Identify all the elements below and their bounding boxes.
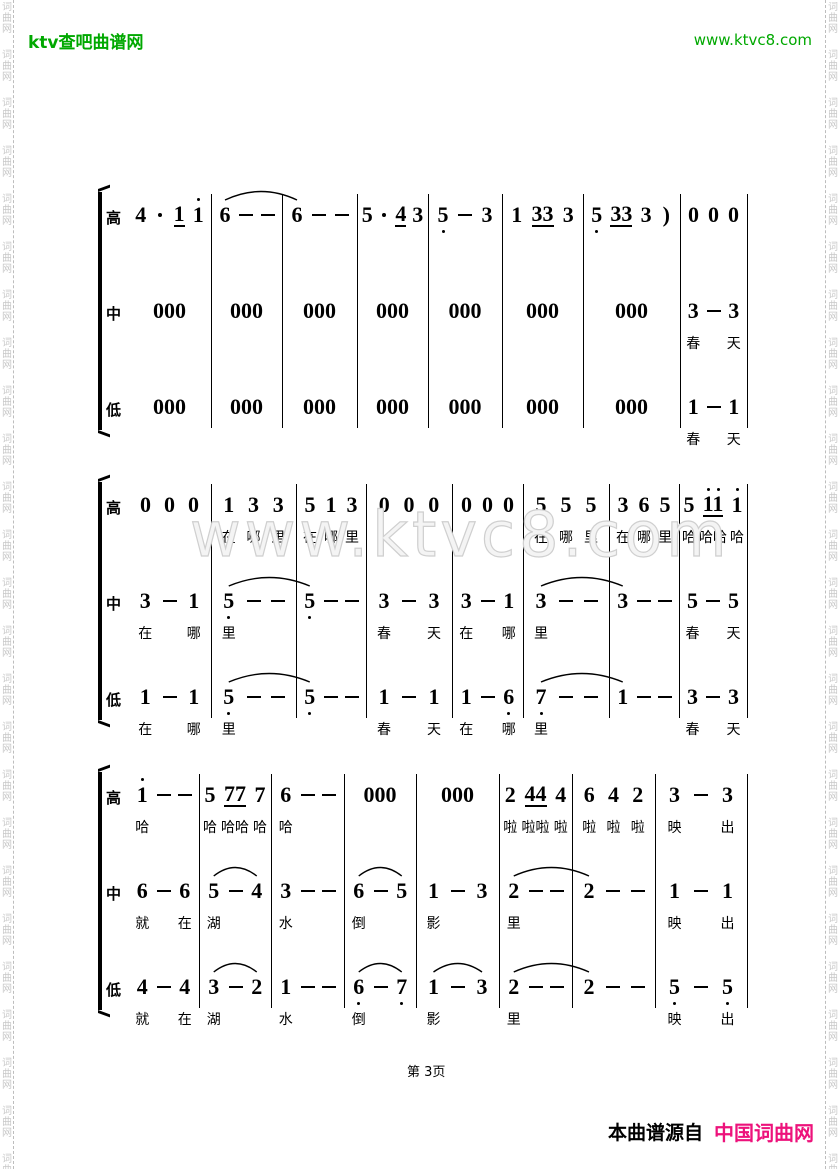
note-token: 77哈哈 <box>221 776 249 835</box>
lyric-syllable: 哈 <box>730 527 744 545</box>
lyric-syllable: 里 <box>584 527 598 545</box>
lyric-syllable: 天 <box>727 333 741 351</box>
measure: 000 <box>680 196 747 255</box>
measure: 4就4在 <box>128 968 199 1027</box>
measure: 1影3 <box>416 968 499 1027</box>
dash-token <box>322 968 336 1027</box>
note-token: 5里 <box>584 486 598 545</box>
lyric-syllable: 哈 <box>279 817 293 835</box>
dash-token <box>658 678 672 737</box>
measure: 3湖2 <box>199 968 271 1027</box>
lyric-syllable: 春 <box>686 623 700 641</box>
note-token: 4就 <box>135 968 149 1027</box>
note-token: 1哪 <box>187 678 201 737</box>
note-token: 1哪 <box>187 582 201 641</box>
lyric-syllable: 天 <box>727 623 741 641</box>
note-token: 6哈 <box>279 776 293 835</box>
note-token: 3在 <box>616 486 630 545</box>
note-token: 5哈 <box>203 776 217 835</box>
measure: 3春3天 <box>680 292 747 351</box>
dash-token <box>706 678 720 737</box>
measure: 1333 <box>502 196 583 255</box>
note-token: 3春 <box>377 582 391 641</box>
lyric-syllable: 影 <box>427 913 441 931</box>
note-token: 3在 <box>459 582 473 641</box>
lyric-syllable: 天 <box>427 623 441 641</box>
note-token: 3出 <box>721 776 735 835</box>
dash-token <box>707 388 721 447</box>
dash-token <box>345 582 359 641</box>
note-token: 3 <box>411 196 424 255</box>
note-token: 1 <box>192 196 205 255</box>
measure: 000 <box>357 388 428 447</box>
note-token: 33 <box>532 196 554 255</box>
note-token: 3 <box>562 196 575 255</box>
note-token: 5里 <box>222 678 236 737</box>
dash-token <box>584 582 598 641</box>
score-area: 高411665435313335333)000中0000000000000000… <box>0 0 840 1169</box>
note-token: 3春 <box>686 678 700 737</box>
lyric-syllable: 倒 <box>352 1009 366 1027</box>
note-token: 5映 <box>668 968 682 1027</box>
note-token: 5天 <box>727 582 741 641</box>
lyric-syllable: 哈哈 <box>699 527 727 545</box>
lyric-syllable: 哈 <box>253 817 267 835</box>
note-token: 2 <box>250 968 263 1027</box>
note-token: 4在 <box>178 968 192 1027</box>
measure: 1哈 <box>128 776 199 835</box>
dash-token <box>301 776 315 835</box>
lyric-syllable: 在 <box>459 719 473 737</box>
measure: 543 <box>357 196 428 255</box>
dash-token <box>229 968 243 1027</box>
note-token: 2 <box>583 968 596 1027</box>
rest-token: 000 <box>449 292 482 351</box>
note-token: 1哪 <box>502 582 516 641</box>
dash-token <box>178 776 192 835</box>
note-token: 1天 <box>727 388 741 447</box>
note-token: 3映 <box>668 776 682 835</box>
note-token: 4 <box>250 872 263 931</box>
lyric-syllable: 里 <box>345 527 359 545</box>
dash-token <box>157 776 171 835</box>
dash-token <box>694 968 708 1027</box>
measure: 000 <box>344 776 416 835</box>
octave-dots-below <box>357 1000 360 1006</box>
dash-token <box>247 678 261 737</box>
lyric-syllable: 春 <box>686 429 700 447</box>
note-token: 2啦 <box>631 776 645 835</box>
dash-token <box>301 968 315 1027</box>
lyric-syllable: 天 <box>727 719 741 737</box>
lyric-syllable: 哪 <box>502 719 516 737</box>
rest-token: 000 <box>526 388 559 447</box>
lyric-syllable: 出 <box>721 1009 735 1027</box>
measure: 000 <box>452 486 523 545</box>
lyric-syllable: 在 <box>178 1009 192 1027</box>
measure: 000 <box>502 388 583 447</box>
note-token: 6就 <box>135 872 149 931</box>
measure: 3春3天 <box>366 582 452 641</box>
barline <box>747 194 748 428</box>
system-bracket <box>98 482 102 720</box>
lyric-syllable: 春 <box>686 719 700 737</box>
octave-dots-below <box>308 614 311 620</box>
part-label: 中 <box>106 303 124 324</box>
measure: 000 <box>282 292 357 351</box>
rest-token: 0 <box>687 196 700 255</box>
measure: 000 <box>211 388 282 447</box>
measure: 000 <box>583 292 680 351</box>
dash-token <box>324 678 338 737</box>
lyric-syllable: 哪 <box>187 719 201 737</box>
measure: 5在5哪5里 <box>523 486 609 545</box>
lyric-syllable: 倒 <box>352 913 366 931</box>
measure: 3水 <box>271 872 344 931</box>
note-token: 5在 <box>534 486 548 545</box>
measure: 000 <box>366 486 452 545</box>
note-token: 5 <box>437 196 450 255</box>
note-token: 2里 <box>507 968 521 1027</box>
measure: 1 <box>609 678 679 737</box>
lyric-syllable: 在 <box>616 527 630 545</box>
note-token: 6哪 <box>502 678 516 737</box>
lyric-syllable: 啦 <box>554 817 568 835</box>
octave-dots-below <box>673 1000 676 1006</box>
note-token: 1春 <box>686 388 700 447</box>
lyric-syllable: 啦 <box>631 817 645 835</box>
dash-token <box>157 968 171 1027</box>
measure: 1映1出 <box>655 872 747 931</box>
lyric-syllable: 里 <box>222 719 236 737</box>
measure: 000 <box>211 292 282 351</box>
dash-token <box>271 678 285 737</box>
note-token: 4 <box>134 196 147 255</box>
lyric-syllable: 就 <box>135 913 149 931</box>
note-token: 2里 <box>507 872 521 931</box>
dash-token <box>631 968 645 1027</box>
lyric-syllable: 哪 <box>247 527 261 545</box>
dash-token <box>239 196 253 255</box>
rest-token: 000 <box>615 292 648 351</box>
lyric-syllable: 湖 <box>207 913 221 931</box>
measure: 1影3 <box>416 872 499 931</box>
note-token: 7哈 <box>253 776 267 835</box>
system-bracket <box>98 192 102 430</box>
measure: 3在1哪 <box>128 582 211 641</box>
lyric-syllable: 啦 <box>607 817 621 835</box>
measure: 3映3出 <box>655 776 747 835</box>
note-token: 3 <box>481 196 494 255</box>
rest-token: 0 <box>139 486 152 545</box>
note-token: 5哪 <box>559 486 573 545</box>
dash-token <box>163 582 177 641</box>
lyric-syllable: 湖 <box>207 1009 221 1027</box>
measure: 1春1天 <box>680 388 747 447</box>
rest-token: 000 <box>526 292 559 351</box>
dash-token <box>529 968 543 1027</box>
lyric-syllable: 天 <box>727 429 741 447</box>
measure: 411 <box>128 196 211 255</box>
rest-token: 0 <box>460 486 473 545</box>
measure: 000 <box>128 388 211 447</box>
measure: 5里 <box>211 582 296 641</box>
note-token: 5出 <box>721 968 735 1027</box>
rest-token: 000 <box>230 388 263 447</box>
part-label: 高 <box>106 497 124 518</box>
lyric-syllable: 春 <box>377 623 391 641</box>
measure: 000 <box>128 486 211 545</box>
measure: 3 <box>609 582 679 641</box>
note-token: 1在 <box>459 678 473 737</box>
lyric-syllable: 映 <box>668 1009 682 1027</box>
measure: 000 <box>583 388 680 447</box>
dash-token <box>247 582 261 641</box>
rest-token: 000 <box>449 388 482 447</box>
dash-token <box>694 872 708 931</box>
measure: 5湖4 <box>199 872 271 931</box>
lyric-syllable: 里 <box>658 527 672 545</box>
note-token: 3里 <box>345 486 359 545</box>
note-token: 5里 <box>222 582 236 641</box>
rest-token: 0 <box>707 196 720 255</box>
system-bracket <box>98 772 102 1010</box>
lyric-syllable: 水 <box>279 1009 293 1027</box>
measure: 000 <box>357 292 428 351</box>
lyric-syllable: 天 <box>427 719 441 737</box>
measure: 6哈 <box>271 776 344 835</box>
note-token: 5里 <box>658 486 672 545</box>
dash-token <box>374 968 388 1027</box>
rest-token: 0 <box>502 486 515 545</box>
rest-token: 0 <box>187 486 200 545</box>
lyric-syllable: 哈 <box>135 817 149 835</box>
measure: 000 <box>428 292 502 351</box>
measure: 5春5天 <box>679 582 747 641</box>
lyric-syllable: 春 <box>686 333 700 351</box>
dash-token <box>374 872 388 931</box>
measure: 2 <box>572 968 655 1027</box>
lyric-syllable: 春 <box>377 719 391 737</box>
lyric-syllable: 出 <box>721 913 735 931</box>
rest-token: 0 <box>427 486 440 545</box>
note-token: 1哈 <box>135 776 149 835</box>
note-token: 6倒 <box>352 872 366 931</box>
dash-token <box>606 872 620 931</box>
dash-token <box>550 968 564 1027</box>
rest-token: 000 <box>376 292 409 351</box>
note-token: 3哪 <box>247 486 261 545</box>
note-token: 6 <box>291 196 304 255</box>
note-token: 1在 <box>222 486 236 545</box>
dash-token <box>584 678 598 737</box>
note-token: 4啦 <box>554 776 568 835</box>
lyric-syllable: 在 <box>138 623 152 641</box>
measure: 3春3天 <box>679 678 747 737</box>
measure: 6 <box>211 196 282 255</box>
lyric-syllable: 哈 <box>682 527 696 545</box>
dash-token <box>229 872 243 931</box>
barline <box>747 484 748 718</box>
dash-token <box>312 196 326 255</box>
lyric-syllable: 里 <box>507 913 521 931</box>
octave-dots-below <box>400 1000 403 1006</box>
measure: 5 <box>296 582 366 641</box>
measure: 6就6在 <box>128 872 199 931</box>
octave-dots-below <box>540 710 543 716</box>
note-token: 4 <box>394 196 407 255</box>
lyric-syllable: 里 <box>534 623 548 641</box>
measure: 1春1天 <box>366 678 452 737</box>
measure: 6倒7 <box>344 968 416 1027</box>
lyric-syllable: 在 <box>138 719 152 737</box>
note-token: 1影 <box>427 872 441 931</box>
lyric-syllable: 水 <box>279 913 293 931</box>
note-token: 3 <box>640 196 653 255</box>
note-token: 3 <box>476 968 489 1027</box>
note-token: 44啦啦 <box>522 776 550 835</box>
note-token: 1 <box>616 678 629 737</box>
rest-token: 0 <box>403 486 416 545</box>
measure: 2里 <box>499 872 572 931</box>
note-token: 6哪 <box>637 486 651 545</box>
measure: 000 <box>416 776 499 835</box>
lyric-syllable: 哪 <box>559 527 573 545</box>
dash-token <box>451 968 465 1027</box>
measure: 3在6哪5里 <box>609 486 679 545</box>
dash-token <box>606 968 620 1027</box>
measure: 2啦44啦啦4啦 <box>499 776 572 835</box>
measure: 6 <box>282 196 357 255</box>
paren-token: ) <box>660 196 673 255</box>
lyric-syllable: 映 <box>668 913 682 931</box>
octave-dots-below <box>227 614 230 620</box>
note-token: 5 <box>361 196 374 255</box>
note-token: 1水 <box>279 968 293 1027</box>
rest-token: 0 <box>163 486 176 545</box>
lyric-syllable: 里 <box>222 623 236 641</box>
dash-token <box>637 678 651 737</box>
part-label: 高 <box>106 787 124 808</box>
measure: 000 <box>128 292 211 351</box>
octave-dots-below <box>726 1000 729 1006</box>
lyric-syllable: 里 <box>534 719 548 737</box>
note-token: 1 <box>173 196 186 255</box>
note-token: 6啦 <box>582 776 596 835</box>
dash-token <box>271 582 285 641</box>
lyric-syllable: 出 <box>721 817 735 835</box>
part-label: 低 <box>106 979 124 1000</box>
note-token: 1天 <box>427 678 441 737</box>
note-token: 1在 <box>138 678 152 737</box>
measure: 5在1哪3里 <box>296 486 366 545</box>
dash-token <box>658 582 672 641</box>
dash-token <box>481 582 495 641</box>
measure: 000 <box>502 292 583 351</box>
measure: 2 <box>572 872 655 931</box>
note-token: 1出 <box>721 872 735 931</box>
dash-token <box>261 196 275 255</box>
note-token: 3里 <box>534 582 548 641</box>
dash-token <box>335 196 349 255</box>
note-token: 7里 <box>534 678 548 737</box>
note-token: 5在 <box>303 486 317 545</box>
dash-token <box>402 678 416 737</box>
measure: 2里 <box>499 968 572 1027</box>
note-token: 5春 <box>686 582 700 641</box>
rest-token: 000 <box>364 776 397 835</box>
measure: 1在1哪 <box>128 678 211 737</box>
measure: 1在3哪3里 <box>211 486 296 545</box>
rest-token: 000 <box>303 292 336 351</box>
note-token: 5湖 <box>207 872 221 931</box>
measure: 6倒5 <box>344 872 416 931</box>
dash-token <box>451 872 465 931</box>
dash-token <box>322 872 336 931</box>
note-token: 11哈哈 <box>699 486 727 545</box>
measure: 5里 <box>211 678 296 737</box>
dash-token <box>529 872 543 931</box>
note-token: 3 <box>476 872 489 931</box>
measure: 5333) <box>583 196 680 255</box>
lyric-syllable: 就 <box>135 1009 149 1027</box>
rest-token: 0 <box>378 486 391 545</box>
measure: 000 <box>428 388 502 447</box>
dash-token <box>559 678 573 737</box>
lyric-syllable: 哪 <box>324 527 338 545</box>
note-token: 2啦 <box>503 776 517 835</box>
dash-token <box>163 678 177 737</box>
note-token: 5 <box>303 678 316 737</box>
measure: 5 <box>296 678 366 737</box>
measure: 6啦4啦2啦 <box>572 776 655 835</box>
note-token: 1 <box>510 196 523 255</box>
lyric-syllable: 哪 <box>187 623 201 641</box>
dash-token <box>402 582 416 641</box>
lyric-syllable: 哈 <box>203 817 217 835</box>
note-token: 3天 <box>727 678 741 737</box>
rest-token: 000 <box>230 292 263 351</box>
lyric-syllable: 啦 <box>503 817 517 835</box>
note-token: 1哈 <box>730 486 744 545</box>
lyric-syllable: 在 <box>222 527 236 545</box>
rest-token: 000 <box>615 388 648 447</box>
octave-dots-below <box>595 228 598 234</box>
octave-dots-below <box>308 710 311 716</box>
score-system-2: 高0001在3哪3里5在1哪3里0000005在5哪5里3在6哪5里5哈11哈哈… <box>100 480 760 750</box>
dash-token <box>559 582 573 641</box>
lyric-syllable: 映 <box>668 817 682 835</box>
lyric-syllable: 哪 <box>502 623 516 641</box>
dash-token <box>637 582 651 641</box>
lyric-syllable: 哪 <box>637 527 651 545</box>
rest-token: 000 <box>303 388 336 447</box>
measure: 3里 <box>523 582 609 641</box>
note-token: 3 <box>616 582 629 641</box>
note-token: 5 <box>590 196 603 255</box>
measure: 53 <box>428 196 502 255</box>
lyric-syllable: 在 <box>178 913 192 931</box>
dash-token <box>324 582 338 641</box>
dash-token <box>157 872 171 931</box>
dash-token <box>322 776 336 835</box>
dash-token <box>550 872 564 931</box>
part-label: 低 <box>106 689 124 710</box>
rest-token: 000 <box>153 388 186 447</box>
note-token: 1哪 <box>324 486 338 545</box>
lyric-syllable: 里 <box>271 527 285 545</box>
note-token: 33 <box>610 196 632 255</box>
